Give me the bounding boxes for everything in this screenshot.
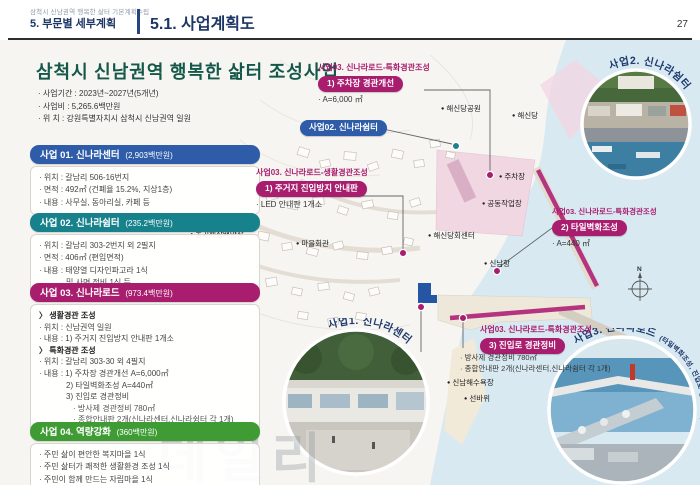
page-header: 삼척시 신남권역 행복한 삶터 기본계획수립 5. 부문별 세부계획 5.1. … <box>0 0 700 40</box>
overview-budget: · 사업비 : 5,265.6백만원 <box>38 101 191 114</box>
callout-detail: · 종합안내판 2개(신나라센터,신나라쉼터 각 1개) <box>460 363 610 374</box>
map-label-parking: 주차장 <box>499 171 525 182</box>
project-04-title: 사업 04. 역량강화 <box>40 427 111 438</box>
detail-row: · 위치 : 갈남리 303-2번지 외 2필지 <box>39 240 251 252</box>
detail-row: · 주민 삶이 편안한 복지마을 1식 <box>39 449 251 461</box>
callout-category: 사업03. 신나라로드-생활경관조성 <box>256 167 368 178</box>
map-label-beach: 신남해수욕장 <box>447 377 494 388</box>
sinnara-center-building <box>418 283 431 303</box>
project-03-budget: (973.4백만원) <box>125 289 172 298</box>
inset-photo-shelter: 사업2. 신나라쉼터 <box>574 48 700 198</box>
detail-row: · 위치 : 갈남리 303-30 외 4필지 <box>39 356 251 368</box>
detail-row: · 내용 : 태양열 디자인파고라 1식 <box>39 265 251 277</box>
callout-entry-road-details: · 방사제 경관정비 780㎡ · 종합안내판 2개(신나라센터,신나라쉼터 각… <box>460 352 610 374</box>
detail-row: · 내용 : 1) 주차장 경관개선 A=6,000㎡ <box>39 368 251 380</box>
detail-row: · 위치 : 신남권역 일원 <box>39 322 251 334</box>
header-divider <box>137 9 140 34</box>
callout-detail: · LED 안내판 1개소 <box>256 199 368 210</box>
callout-entry-road: 사업03. 신나라로드-특화경관조성 3) 진입로 경관정비 <box>480 324 592 354</box>
overview-location: · 위 치 : 강원특별자치시 삼척시 신남권역 일원 <box>38 113 191 126</box>
detail-row: · 면적 : 492㎡ (건폐율 15.2%, 지상1층) <box>39 184 251 196</box>
project-box-03: 사업 03. 신나라로드 (973.4백만원) 〉 생활경관 조성 · 위치 :… <box>30 283 260 432</box>
callout-category: 사업03. 신나라로드-특화경관조성 <box>552 206 657 217</box>
header-rule <box>8 38 692 40</box>
project-02-title: 사업 02. 신나라쉼터 <box>40 218 120 229</box>
detail-row: · 방사제 경관정비 780㎡ <box>39 403 251 415</box>
callout-pill: 2) 타일벽화조성 <box>552 220 627 236</box>
project-01-budget: (2,903백만원) <box>125 151 172 160</box>
map-label-sinnam-port: 신남항 <box>484 258 510 269</box>
detail-row: · 면적 : 406㎡ (편입면적) <box>39 252 251 264</box>
detail-row: · 위치 : 갈남리 506-16번지 <box>39 172 251 184</box>
project-overview: · 사업기간 : 2023년~2027년(5개년) · 사업비 : 5,265.… <box>38 88 191 126</box>
slide-page: N 삼척시 신남권역 행복한 삶터 기본계획수립 5. 부문별 세부계획 5.1… <box>0 0 700 485</box>
compass-label: N <box>637 266 642 273</box>
section-title: 5. 부문별 세부계획 <box>30 15 116 31</box>
project-03-header: 사업 03. 신나라로드 (973.4백만원) <box>30 283 260 302</box>
subsection-title: 〉 생활경관 조성 <box>39 310 251 322</box>
overview-period: · 사업기간 : 2023년~2027년(5개년) <box>38 88 191 101</box>
project-04-header: 사업 04. 역량강화 (360백만원) <box>30 422 260 441</box>
project-02-budget: (235.2백만원) <box>125 219 172 228</box>
detail-row: 3) 진입로 경관정비 <box>39 391 251 403</box>
project-main-title: 삼척시 신남권역 행복한 삶터 조성사업 <box>36 58 339 84</box>
callout-category: 사업03. 신나라로드-특화경관조성 <box>480 324 592 335</box>
detail-row: · 내용 : 사무실, 동아리실, 카페 등 <box>39 197 251 209</box>
page-title: 5.1. 사업계획도 <box>150 10 255 34</box>
callout-detail: · A=6,000 ㎡ <box>318 94 430 105</box>
callout-entry-sign: 사업03. 신나라로드-생활경관조성 1) 주거지 진입방지 안내판 · LED… <box>256 167 368 210</box>
page-number: 27 <box>677 19 688 30</box>
map-label-fish-center: 해신당회센터 <box>428 230 475 241</box>
detail-row: 2) 타일벽화조성 A=440㎡ <box>39 380 251 392</box>
callout-tile-wall: 사업03. 신나라로드-특화경관조성 2) 타일벽화조성 · A=440 ㎡ <box>552 206 657 249</box>
map-label-seonbawi: 선바위 <box>464 393 490 404</box>
project-01-header: 사업 01. 신나라센터 (2,903백만원) <box>30 145 260 164</box>
callout-pill: 사업02. 신나라쉼터 <box>300 120 387 136</box>
project-box-01: 사업 01. 신나라센터 (2,903백만원) · 위치 : 갈남리 506-1… <box>30 145 260 215</box>
map-label-haesindang: 해신당 <box>512 110 538 121</box>
project-01-title: 사업 01. 신나라센터 <box>40 150 120 161</box>
callout-pill: 1) 주차장 경관개선 <box>318 76 403 92</box>
project-03-body: 〉 생활경관 조성 · 위치 : 신남권역 일원 · 내용 : 1) 주거지 진… <box>30 304 260 432</box>
callout-category: 사업03. 신나라로드-특화경관조성 <box>318 62 430 73</box>
subsection-title: 〉 특화경관 조성 <box>39 345 251 357</box>
callout-pill: 1) 주거지 진입방지 안내판 <box>256 181 367 197</box>
detail-row: · 내용 : 1) 주거지 진입방지 안내판 1개소 <box>39 333 251 345</box>
project-01-body: · 위치 : 갈남리 506-16번지 · 면적 : 492㎡ (건폐율 15.… <box>30 166 260 215</box>
callout-shelter: 사업02. 신나라쉼터 <box>300 117 387 136</box>
project-box-04: 사업 04. 역량강화 (360백만원) · 주민 삶이 편안한 복지마을 1식… <box>30 422 260 485</box>
project-04-body: · 주민 삶이 편안한 복지마을 1식 · 주민 삶터가 쾌적한 생활환경 조성… <box>30 443 260 485</box>
detail-row: · 주민 삶터가 쾌적한 생활환경 조성 1식 <box>39 461 251 473</box>
callout-detail: · 방사제 경관정비 780㎡ <box>460 352 610 363</box>
sinnara-center-building-annex <box>431 295 437 303</box>
project-04-budget: (360백만원) <box>117 428 158 437</box>
map-label-village-hall: 마을회관 <box>296 238 329 249</box>
project-03-title: 사업 03. 신나라로드 <box>40 288 120 299</box>
map-label-haesindang-park: 해신당공원 <box>441 103 481 114</box>
project-02-header: 사업 02. 신나라쉼터 (235.2백만원) <box>30 213 260 232</box>
callout-parking: 사업03. 신나라로드-특화경관조성 1) 주차장 경관개선 · A=6,000… <box>318 62 430 105</box>
callout-detail: · A=440 ㎡ <box>552 238 657 249</box>
map-label-workshop: 공동작업장 <box>482 198 522 209</box>
detail-row: · 주민이 함께 만드는 자립마을 1식 <box>39 474 251 485</box>
